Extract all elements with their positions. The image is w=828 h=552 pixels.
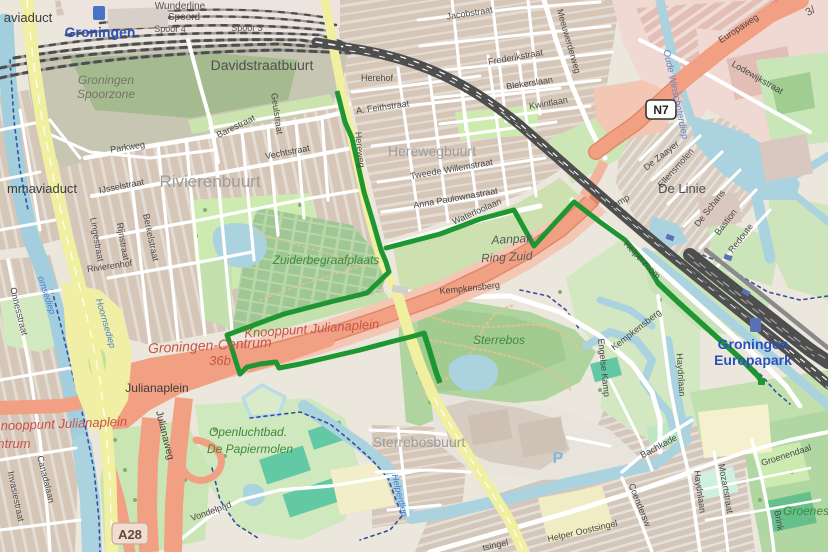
svg-text:Groenes: Groenes — [783, 504, 828, 518]
svg-text:Rivierenbuurt: Rivierenbuurt — [159, 172, 260, 191]
svg-text:Ring Zuid: Ring Zuid — [481, 249, 533, 266]
svg-text:Herewegbuurt: Herewegbuurt — [388, 143, 476, 159]
svg-text:aviaduct: aviaduct — [4, 10, 53, 25]
svg-text:De Papiermolen: De Papiermolen — [207, 442, 293, 456]
svg-text:Spoor 4: Spoor 4 — [154, 24, 186, 34]
svg-text:Europapark: Europapark — [714, 352, 792, 368]
svg-text:Sterrebosbuurt: Sterrebosbuurt — [373, 434, 466, 450]
svg-text:Spoor 3: Spoor 3 — [231, 23, 263, 33]
svg-text:ntrum: ntrum — [0, 436, 31, 451]
svg-text:A28: A28 — [118, 527, 142, 542]
svg-text:N7: N7 — [653, 103, 669, 117]
svg-text:Spoorzone: Spoorzone — [77, 87, 135, 101]
svg-text:Sterrebos: Sterrebos — [473, 333, 525, 347]
svg-text:Groningen: Groningen — [718, 336, 789, 352]
svg-text:mmaviaduct: mmaviaduct — [7, 181, 77, 196]
svg-text:Wunderline: Wunderline — [155, 1, 206, 12]
svg-text:P: P — [553, 450, 564, 467]
svg-text:Julianaplein: Julianaplein — [125, 381, 188, 395]
svg-text:Groningen: Groningen — [65, 24, 136, 40]
svg-text:Openluchtbad.: Openluchtbad. — [209, 425, 287, 439]
svg-text:Spoord: Spoord — [168, 12, 200, 23]
svg-text:Zuiderbegraafplaats: Zuiderbegraafplaats — [272, 253, 380, 267]
svg-text:36b: 36b — [209, 353, 231, 368]
svg-text:Aanpak: Aanpak — [490, 231, 533, 247]
svg-text:Herehof: Herehof — [361, 73, 394, 83]
svg-text:Davidstraatbuurt: Davidstraatbuurt — [211, 57, 314, 73]
svg-text:Groningen: Groningen — [78, 73, 134, 87]
